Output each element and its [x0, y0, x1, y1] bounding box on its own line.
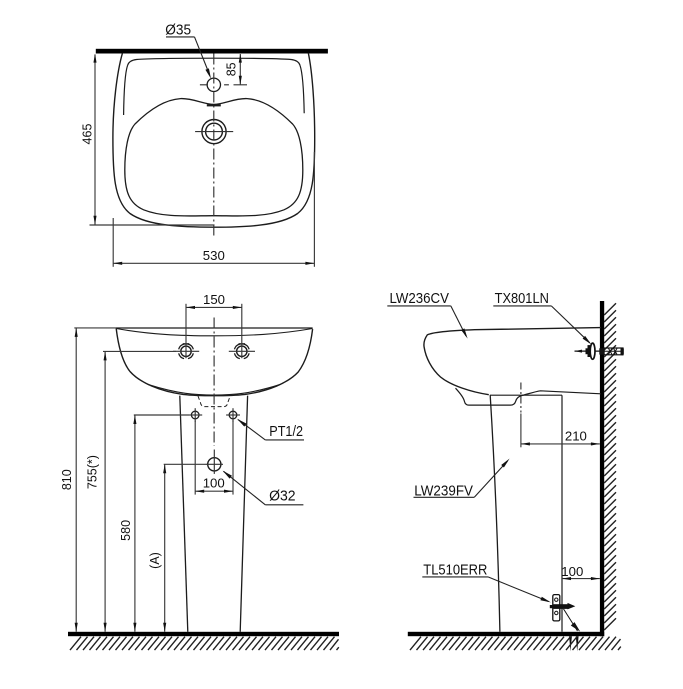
svg-text:PT1/2: PT1/2 [269, 424, 303, 440]
svg-text:100: 100 [561, 564, 583, 579]
svg-text:150: 150 [203, 292, 225, 307]
svg-text:580: 580 [119, 520, 133, 541]
svg-text:755(*): 755(*) [85, 455, 99, 489]
svg-text:Ø35: Ø35 [165, 23, 191, 39]
svg-text:85: 85 [224, 62, 238, 76]
svg-text:TX801LN: TX801LN [495, 291, 549, 307]
svg-text:530: 530 [203, 248, 225, 263]
svg-text:TL510ERR: TL510ERR [423, 562, 487, 578]
svg-text:LW236CV: LW236CV [390, 291, 450, 307]
svg-text:810: 810 [60, 469, 74, 490]
svg-text:(A): (A) [148, 552, 162, 569]
svg-text:Ø32: Ø32 [269, 488, 296, 504]
svg-text:465: 465 [81, 124, 95, 145]
svg-text:210: 210 [565, 428, 587, 443]
svg-text:100: 100 [203, 476, 225, 491]
